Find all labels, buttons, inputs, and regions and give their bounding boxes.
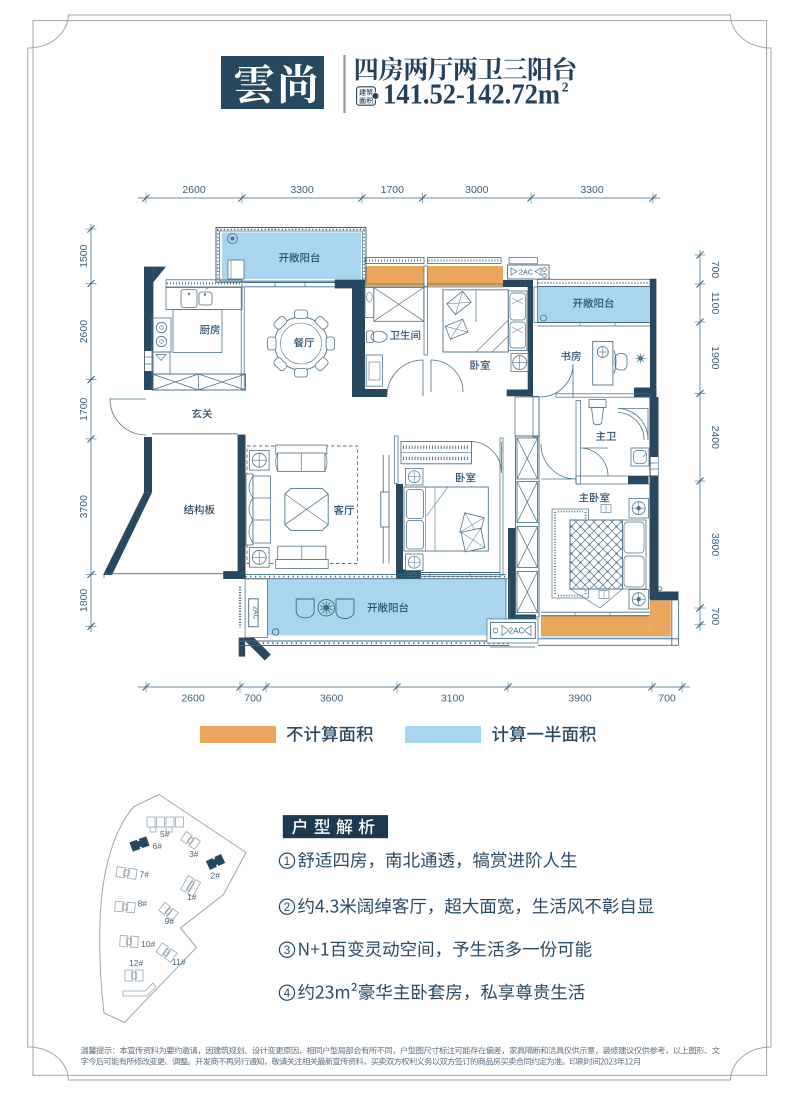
svg-text:3600: 3600 <box>320 693 344 705</box>
svg-text:1: 1 <box>284 856 290 868</box>
svg-text:1500: 1500 <box>78 244 90 268</box>
svg-text:2AC: 2AC <box>509 627 525 636</box>
svg-text:1700: 1700 <box>381 184 405 196</box>
svg-text:1900: 1900 <box>709 346 721 370</box>
svg-text:8#: 8# <box>138 899 148 909</box>
svg-text:2AC: 2AC <box>252 606 259 620</box>
svg-text:3700: 3700 <box>78 495 90 519</box>
svg-text:11#: 11# <box>172 957 186 967</box>
svg-text:2: 2 <box>284 902 290 914</box>
svg-text:3000: 3000 <box>465 184 489 196</box>
svg-text:3300: 3300 <box>580 184 604 196</box>
svg-text:3#: 3# <box>189 849 199 859</box>
svg-text:3800: 3800 <box>709 533 721 557</box>
svg-text:4: 4 <box>284 988 291 1000</box>
svg-text:2400: 2400 <box>709 426 721 450</box>
svg-text:1#: 1# <box>187 892 197 902</box>
svg-text:2600: 2600 <box>182 184 206 196</box>
svg-text:141.52-142.72m: 141.52-142.72m <box>383 80 560 111</box>
svg-text:3: 3 <box>284 945 290 957</box>
svg-text:12#: 12# <box>129 958 143 968</box>
svg-text:2#: 2# <box>211 871 221 881</box>
svg-text:2AC: 2AC <box>519 268 534 277</box>
svg-text:700: 700 <box>709 261 721 279</box>
svg-text:1800: 1800 <box>78 589 90 613</box>
svg-text:3300: 3300 <box>290 184 314 196</box>
svg-text:700: 700 <box>658 693 676 705</box>
svg-text:5#: 5# <box>160 829 170 839</box>
svg-text:2600: 2600 <box>78 320 90 344</box>
svg-text:700: 700 <box>244 693 262 705</box>
svg-text:10#: 10# <box>141 939 155 949</box>
svg-text:3900: 3900 <box>568 693 592 705</box>
svg-text:7#: 7# <box>140 870 150 880</box>
svg-text:700: 700 <box>709 608 721 626</box>
svg-text:6#: 6# <box>153 841 163 851</box>
svg-text:1100: 1100 <box>709 292 721 315</box>
svg-text:2600: 2600 <box>181 693 205 705</box>
svg-text:9#: 9# <box>165 916 175 926</box>
svg-text:1700: 1700 <box>78 397 90 421</box>
svg-text:2: 2 <box>562 80 569 95</box>
svg-text:3100: 3100 <box>441 693 465 705</box>
